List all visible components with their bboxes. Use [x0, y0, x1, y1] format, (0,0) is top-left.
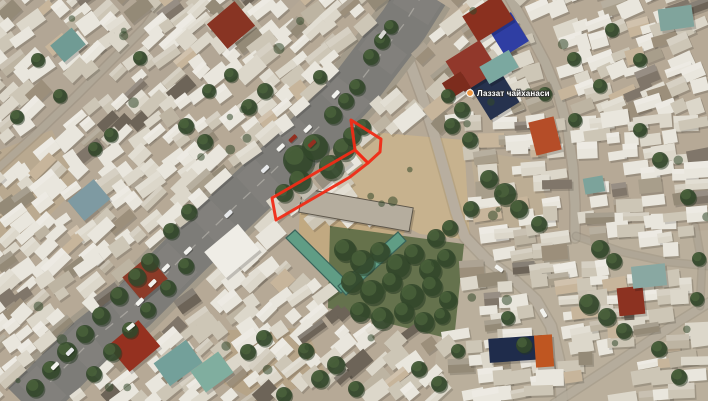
tree-highlight — [314, 71, 323, 80]
building-roof — [543, 206, 558, 221]
tree-highlight — [339, 94, 349, 104]
building-roof — [524, 385, 554, 396]
shrub — [15, 378, 20, 383]
tree-highlight — [352, 251, 367, 266]
building-roof — [662, 129, 678, 145]
tree-highlight — [607, 254, 617, 264]
tree-highlight — [285, 146, 304, 165]
tree-highlight — [693, 253, 702, 262]
tree-highlight — [481, 171, 492, 182]
tree-highlight — [179, 119, 189, 129]
building-roof — [616, 198, 643, 212]
tree-highlight — [349, 382, 359, 392]
tree-highlight — [440, 292, 451, 303]
building-roof — [541, 244, 568, 261]
tree-highlight — [182, 205, 192, 215]
tree-highlight — [517, 338, 527, 348]
tree-highlight — [335, 240, 349, 254]
tree-highlight — [351, 303, 363, 315]
tree-highlight — [383, 273, 395, 285]
building-roof — [498, 385, 512, 400]
building-roof — [681, 356, 708, 365]
tree-highlight — [681, 190, 691, 200]
tree-highlight — [423, 277, 435, 289]
tree-highlight — [87, 367, 97, 377]
building-roof — [497, 281, 512, 293]
tree-highlight — [594, 80, 603, 89]
shrub — [431, 259, 439, 267]
shrub — [463, 120, 470, 127]
shrub — [558, 39, 569, 50]
tree-highlight — [617, 324, 627, 334]
shrub — [469, 7, 477, 15]
tree-highlight — [464, 202, 474, 212]
imagery-layers — [0, 0, 708, 401]
tree-highlight — [606, 24, 615, 33]
shrub — [367, 193, 374, 200]
shrub — [683, 326, 691, 334]
shrub — [496, 207, 501, 212]
building-ridge — [459, 260, 484, 268]
shrub — [368, 334, 375, 341]
tree-highlight — [129, 269, 140, 280]
tree-highlight — [161, 281, 171, 291]
building-roof — [517, 304, 535, 319]
tree-highlight — [257, 331, 267, 341]
shrub — [57, 334, 68, 345]
shrub — [487, 98, 495, 106]
tree-highlight — [11, 111, 20, 120]
tree-highlight — [452, 345, 461, 354]
tree-highlight — [634, 54, 643, 63]
building-roof — [677, 225, 694, 237]
tree-highlight — [569, 114, 578, 123]
tree-highlight — [388, 255, 403, 270]
landmark-roof — [534, 334, 554, 367]
tree-highlight — [134, 52, 143, 61]
shrub — [488, 211, 498, 221]
shrub — [105, 383, 114, 392]
tree-highlight — [445, 119, 455, 129]
tree-highlight — [277, 388, 287, 398]
tree-highlight — [93, 308, 104, 319]
shrub — [305, 344, 311, 350]
tree-highlight — [54, 90, 63, 99]
tree-highlight — [77, 326, 88, 337]
tree-highlight — [241, 345, 251, 355]
shrub — [407, 167, 413, 173]
landmark-roof — [658, 5, 695, 32]
shrub — [496, 190, 502, 196]
tree-highlight — [652, 342, 662, 352]
tree-highlight — [395, 303, 407, 315]
tree-highlight — [502, 312, 511, 321]
shrub — [263, 365, 273, 375]
shrub — [197, 153, 205, 161]
tree-highlight — [442, 90, 451, 99]
tree-highlight — [385, 21, 394, 30]
building-roof — [466, 340, 483, 353]
tree-highlight — [580, 295, 592, 307]
tree-highlight — [325, 107, 336, 118]
tree-highlight — [111, 288, 122, 299]
building-roof — [531, 274, 549, 288]
tree-highlight — [532, 217, 542, 227]
satellite-imagery: Лаззат чайханаси — [0, 0, 708, 401]
building-roof — [536, 369, 564, 386]
tree-highlight — [142, 254, 153, 265]
building-roof — [659, 113, 672, 128]
shrub — [119, 31, 128, 40]
shrub — [123, 384, 131, 392]
poi-marker[interactable]: Лаззат чайханаси — [467, 89, 550, 98]
shrub — [502, 295, 512, 305]
shrub — [674, 156, 683, 165]
shrub — [378, 200, 385, 207]
tree-highlight — [412, 362, 422, 372]
tree-highlight — [372, 308, 386, 322]
tree-highlight — [691, 293, 700, 302]
shrub — [388, 196, 398, 206]
tree-highlight — [568, 53, 577, 62]
shrub — [34, 302, 44, 312]
building-ridge — [484, 292, 501, 300]
building-roof — [542, 180, 572, 190]
shrub — [468, 293, 477, 302]
tree-highlight — [435, 309, 445, 319]
tree-highlight — [164, 224, 174, 234]
tree-highlight — [371, 243, 383, 255]
tree-highlight — [203, 85, 212, 94]
tree-highlight — [405, 245, 417, 257]
shrub — [69, 15, 76, 22]
tree-highlight — [225, 69, 234, 78]
tree-highlight — [258, 84, 268, 94]
tree-highlight — [198, 135, 208, 145]
tree-highlight — [455, 103, 465, 113]
tree-highlight — [328, 357, 339, 368]
building-ridge — [577, 141, 598, 149]
tree-highlight — [438, 250, 449, 261]
tree-highlight — [104, 344, 115, 355]
building-roof — [638, 177, 662, 194]
satellite-map[interactable]: Лаззат чайханаси — [0, 0, 708, 401]
tree-highlight — [350, 80, 360, 90]
tree-highlight — [415, 313, 427, 325]
building-roof — [511, 145, 529, 154]
building-ridge — [666, 334, 689, 341]
tree-highlight — [312, 371, 323, 382]
shrub — [225, 145, 235, 155]
shrub — [239, 106, 247, 114]
building-ridge — [622, 143, 637, 150]
tree-highlight — [463, 133, 473, 143]
tree-highlight — [599, 309, 610, 320]
building-roof — [663, 242, 679, 257]
shrub — [612, 340, 618, 346]
tree-highlight — [672, 370, 682, 380]
tree-highlight — [105, 129, 114, 138]
building-roof — [670, 289, 689, 305]
tree-highlight — [141, 303, 151, 313]
shrub — [296, 17, 304, 25]
landmark-roof — [631, 263, 667, 288]
landmark-roof — [583, 175, 605, 194]
shrub — [128, 97, 139, 108]
building-ridge — [679, 277, 692, 285]
tree-highlight — [342, 272, 356, 286]
shrub — [221, 341, 230, 350]
tree-highlight — [428, 230, 439, 241]
shrub — [274, 43, 285, 54]
tree-highlight — [364, 50, 374, 60]
tree-highlight — [634, 124, 643, 133]
tree-highlight — [592, 241, 603, 252]
building-roof — [578, 352, 592, 366]
shrub — [243, 134, 252, 143]
tree-highlight — [27, 380, 38, 391]
shrub — [227, 114, 233, 120]
building-roof — [589, 194, 608, 208]
shrub — [376, 283, 387, 294]
poi-dot-icon[interactable] — [467, 90, 474, 97]
tree-highlight — [653, 153, 663, 163]
tree-highlight — [443, 221, 453, 231]
poi-label[interactable]: Лаззат чайханаси — [477, 89, 550, 98]
tree-highlight — [432, 377, 442, 387]
tree-highlight — [362, 281, 377, 296]
tree-highlight — [32, 54, 41, 63]
tree-highlight — [402, 285, 417, 300]
building-ridge — [623, 212, 649, 216]
tree-highlight — [89, 143, 98, 152]
tree-highlight — [179, 259, 189, 269]
tree-highlight — [511, 201, 522, 212]
